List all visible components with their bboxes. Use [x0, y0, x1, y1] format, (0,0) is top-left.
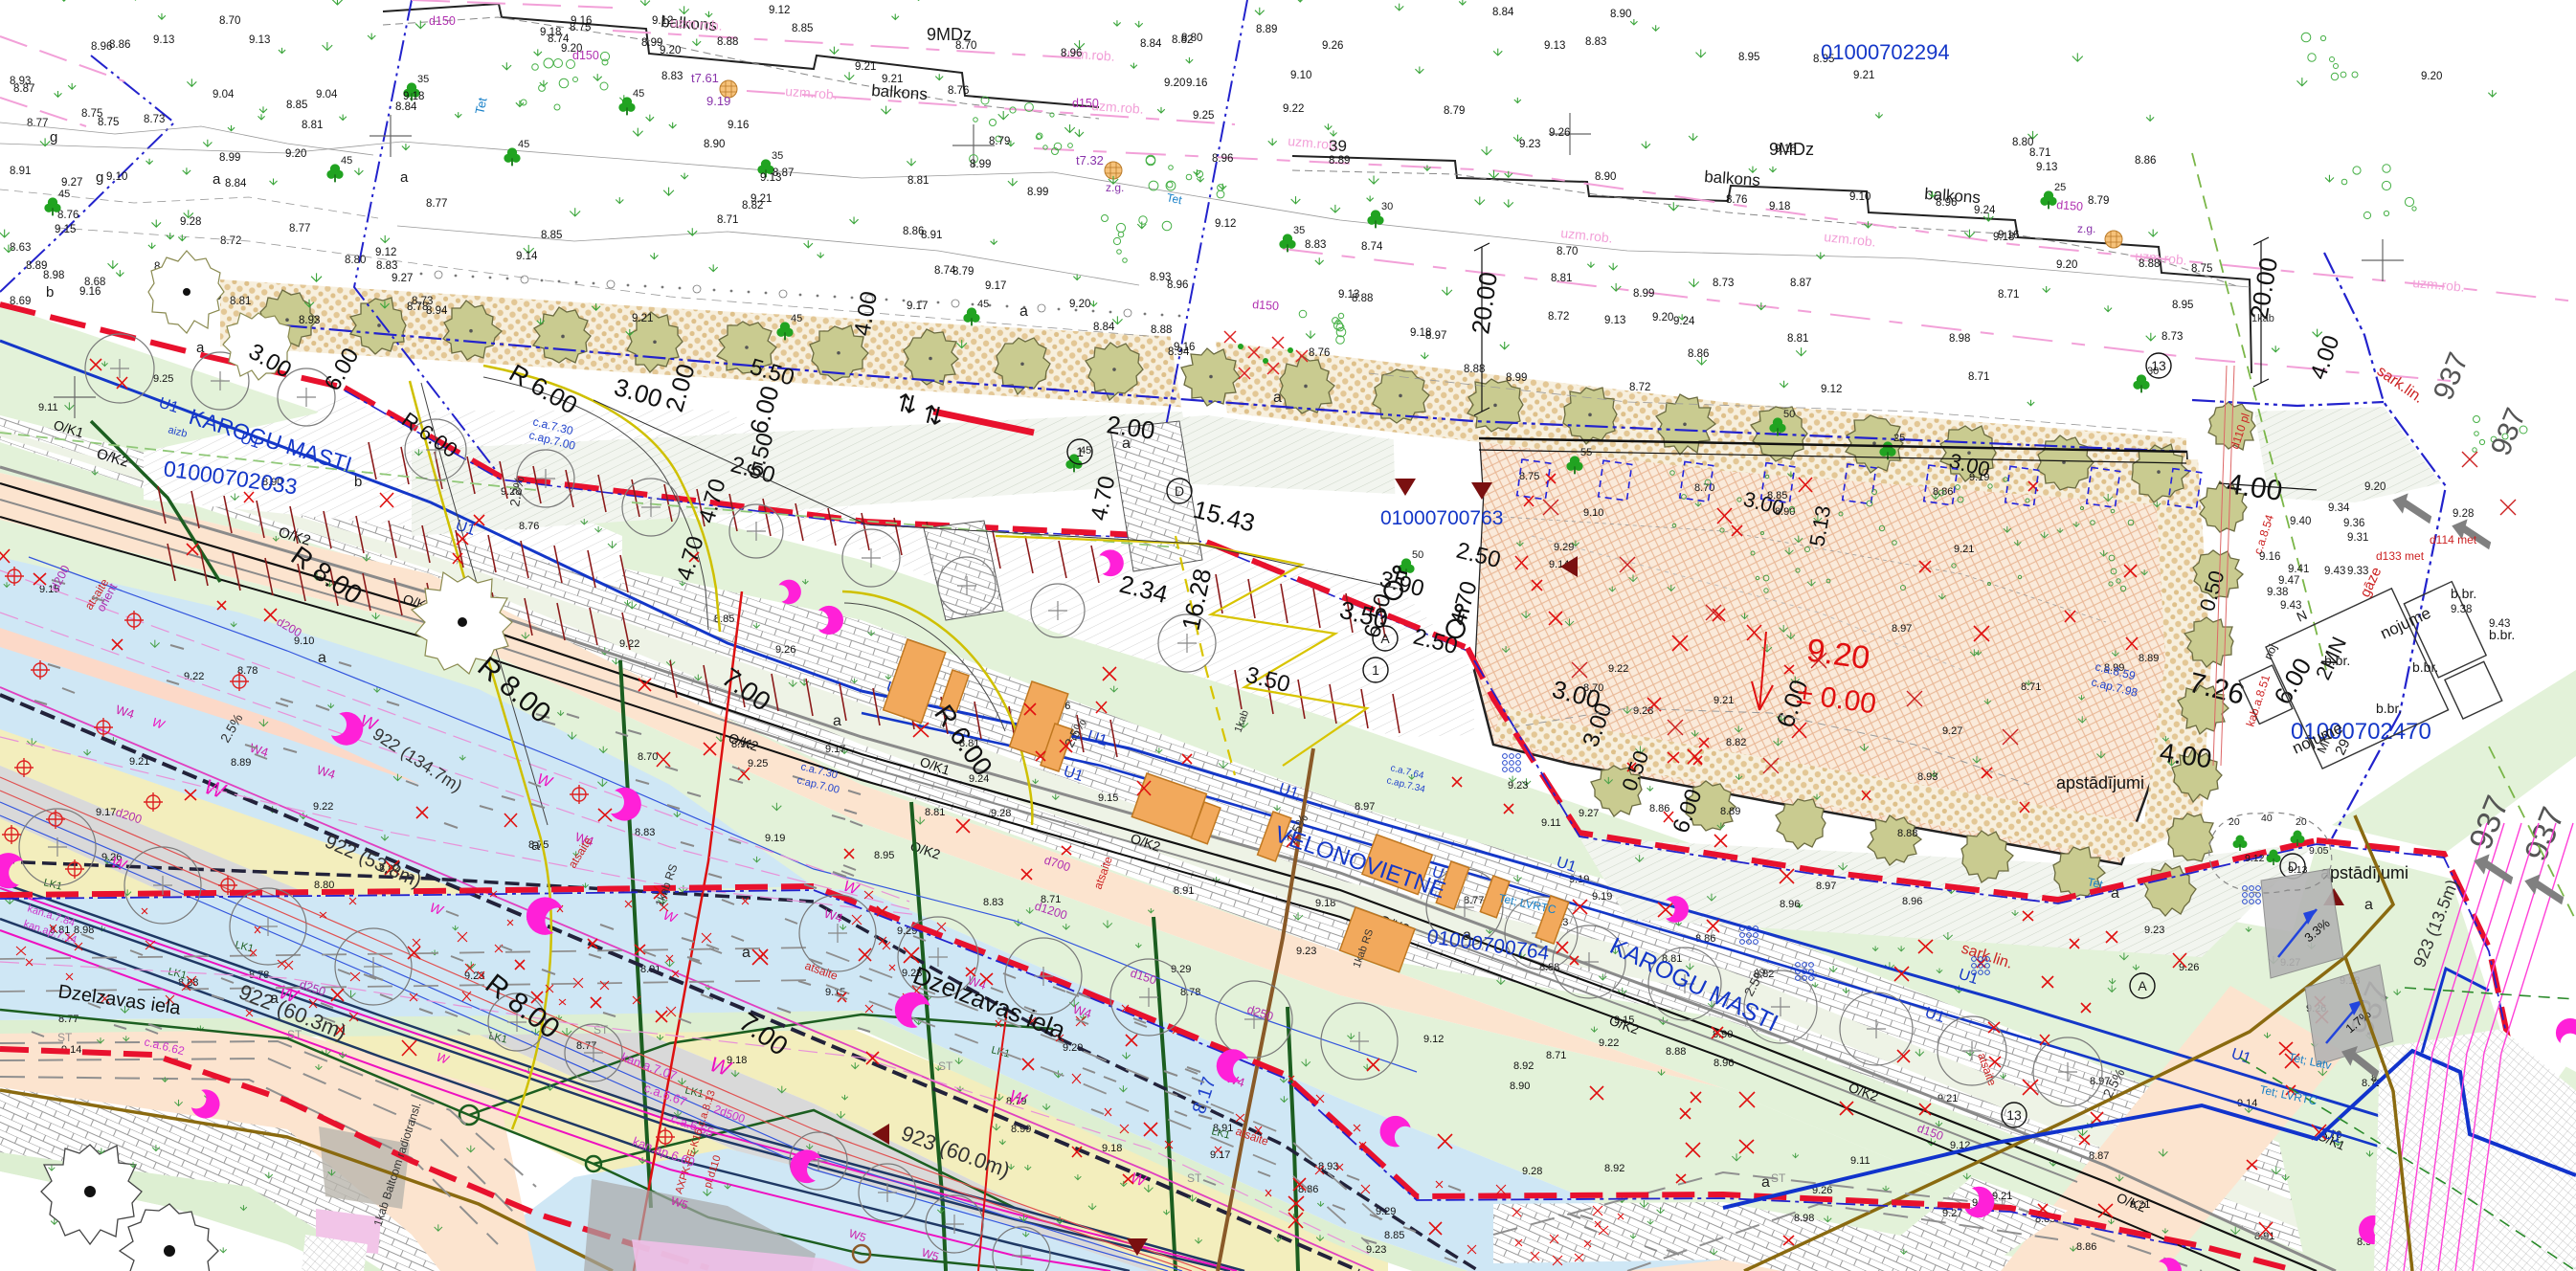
svg-text:9.15: 9.15 — [1098, 792, 1118, 804]
svg-text:45: 45 — [977, 299, 989, 310]
svg-text:8.86: 8.86 — [1933, 486, 1953, 498]
svg-text:8.80: 8.80 — [2012, 137, 2033, 148]
svg-text:a: a — [1761, 1174, 1770, 1191]
svg-text:9.16: 9.16 — [79, 286, 101, 298]
svg-text:8.83: 8.83 — [376, 260, 397, 272]
svg-text:8.71: 8.71 — [717, 214, 738, 226]
svg-text:9.16: 9.16 — [2259, 551, 2280, 563]
svg-text:9.17: 9.17 — [96, 807, 116, 818]
svg-text:9.40: 9.40 — [2290, 516, 2311, 527]
svg-text:9.16: 9.16 — [728, 120, 749, 131]
svg-text:8.83: 8.83 — [635, 827, 655, 838]
svg-text:9.10: 9.10 — [106, 171, 127, 183]
svg-text:b: b — [46, 284, 54, 301]
svg-text:45: 45 — [633, 88, 644, 100]
svg-text:8.98: 8.98 — [1794, 1213, 1814, 1224]
svg-text:50: 50 — [1783, 409, 1795, 420]
svg-text:9.28: 9.28 — [1522, 1166, 1542, 1177]
svg-text:8.75: 8.75 — [1519, 471, 1539, 482]
svg-text:45: 45 — [341, 155, 352, 167]
svg-text:35: 35 — [417, 74, 429, 85]
svg-text:8.93: 8.93 — [299, 315, 320, 326]
svg-text:9.13: 9.13 — [1604, 315, 1625, 326]
svg-text:9.11: 9.11 — [38, 402, 58, 413]
svg-text:8.84: 8.84 — [395, 101, 417, 113]
svg-text:9.13: 9.13 — [1544, 40, 1565, 52]
svg-text:b.br.: b.br. — [2324, 653, 2350, 668]
svg-text:8.75: 8.75 — [2191, 263, 2212, 275]
svg-text:8.77: 8.77 — [27, 118, 48, 129]
svg-text:8.87: 8.87 — [13, 83, 34, 95]
svg-text:9.17: 9.17 — [907, 301, 928, 312]
svg-text:9.18: 9.18 — [1769, 201, 1790, 212]
svg-text:9.20: 9.20 — [285, 148, 306, 160]
svg-text:8.86: 8.86 — [2135, 155, 2156, 167]
svg-text:9.27: 9.27 — [61, 177, 82, 189]
svg-text:9.18: 9.18 — [403, 91, 424, 102]
svg-text:9.20: 9.20 — [1164, 78, 1185, 89]
svg-text:9.21: 9.21 — [632, 313, 653, 324]
svg-text:9.41: 9.41 — [2288, 564, 2309, 575]
svg-text:A: A — [1380, 631, 1390, 646]
svg-text:8.71: 8.71 — [2021, 681, 2041, 693]
svg-text:9.10: 9.10 — [1849, 191, 1870, 203]
svg-text:8.90: 8.90 — [1510, 1081, 1530, 1092]
svg-text:9.18: 9.18 — [1993, 232, 2014, 243]
svg-text:9.38: 9.38 — [2267, 587, 2288, 598]
svg-text:9.19: 9.19 — [765, 833, 785, 844]
svg-text:8.97: 8.97 — [1425, 330, 1446, 342]
svg-text:apstādījumi: apstādījumi — [2320, 863, 2408, 882]
svg-text:8.99: 8.99 — [970, 159, 991, 170]
svg-text:a: a — [1273, 390, 1282, 406]
svg-text:45: 45 — [518, 139, 529, 150]
svg-text:9.20: 9.20 — [1069, 299, 1090, 310]
svg-text:9.15: 9.15 — [55, 224, 76, 235]
svg-text:a: a — [318, 650, 326, 666]
svg-text:a: a — [531, 837, 540, 854]
svg-text:d150: d150 — [1252, 298, 1280, 313]
svg-text:8.91: 8.91 — [1174, 885, 1194, 897]
svg-text:8.77: 8.77 — [426, 198, 447, 210]
svg-text:8.81: 8.81 — [925, 807, 945, 818]
svg-text:8.83: 8.83 — [983, 897, 1003, 908]
svg-text:8.85: 8.85 — [541, 230, 562, 241]
svg-text:55: 55 — [1580, 447, 1592, 458]
svg-text:8.92: 8.92 — [1604, 1163, 1624, 1174]
svg-text:35: 35 — [1293, 225, 1305, 236]
svg-text:9.27: 9.27 — [392, 273, 413, 284]
svg-text:9.20: 9.20 — [1652, 312, 1673, 323]
svg-text:8.76: 8.76 — [57, 210, 78, 221]
svg-text:45: 45 — [58, 189, 70, 200]
svg-text:apstādījumi: apstādījumi — [2056, 773, 2144, 792]
svg-text:8.94: 8.94 — [1168, 346, 1190, 358]
svg-text:8.88: 8.88 — [1897, 828, 1917, 839]
svg-text:8.71: 8.71 — [2029, 147, 2050, 159]
svg-text:t7.61: t7.61 — [691, 71, 719, 85]
svg-text:8.84: 8.84 — [1492, 7, 1514, 18]
svg-text:8.98: 8.98 — [1949, 333, 1970, 345]
svg-text:8.91: 8.91 — [10, 166, 31, 177]
svg-text:9.13: 9.13 — [1338, 289, 1359, 301]
svg-text:t7.32: t7.32 — [1076, 153, 1104, 167]
svg-text:9.47: 9.47 — [2278, 575, 2299, 587]
svg-text:9.22: 9.22 — [1599, 1037, 1619, 1049]
svg-text:50: 50 — [1412, 549, 1423, 561]
svg-text:9.38: 9.38 — [2451, 604, 2472, 615]
svg-text:ST: ST — [287, 1028, 302, 1041]
svg-text:9.22: 9.22 — [184, 671, 204, 682]
svg-text:1kab: 1kab — [2251, 313, 2274, 324]
svg-text:9.13: 9.13 — [2288, 864, 2308, 876]
svg-text:8.74: 8.74 — [548, 33, 570, 45]
svg-text:8.95: 8.95 — [1738, 52, 1759, 63]
svg-text:9.29: 9.29 — [1171, 964, 1191, 975]
svg-text:8.86: 8.86 — [1649, 803, 1669, 814]
svg-text:8.96: 8.96 — [1212, 153, 1233, 165]
svg-text:8.72: 8.72 — [220, 235, 241, 247]
svg-text:a: a — [213, 171, 221, 188]
svg-text:8.88: 8.88 — [1666, 1046, 1686, 1058]
svg-text:8.93: 8.93 — [1917, 771, 1938, 783]
svg-text:8.78: 8.78 — [407, 301, 428, 313]
svg-text:8.76: 8.76 — [1309, 347, 1330, 359]
svg-text:9.22: 9.22 — [1608, 663, 1628, 675]
svg-text:8.81: 8.81 — [1551, 273, 1572, 284]
svg-text:8.98: 8.98 — [43, 270, 64, 281]
svg-text:g: g — [96, 169, 103, 186]
svg-text:9.29: 9.29 — [1554, 542, 1574, 553]
svg-text:9.12: 9.12 — [1215, 218, 1236, 230]
svg-text:8.89: 8.89 — [231, 757, 251, 769]
svg-text:9.23: 9.23 — [1366, 1244, 1386, 1256]
svg-text:a: a — [1019, 303, 1028, 320]
svg-text:8.71: 8.71 — [1998, 289, 2019, 301]
svg-text:9.11: 9.11 — [1850, 1155, 1870, 1167]
svg-text:8.88: 8.88 — [2139, 258, 2160, 270]
svg-text:8.99: 8.99 — [219, 152, 240, 164]
svg-text:9.14: 9.14 — [516, 251, 538, 262]
svg-text:9.12: 9.12 — [652, 15, 673, 27]
svg-text:9.04: 9.04 — [316, 89, 338, 100]
svg-text:8.72: 8.72 — [1548, 311, 1569, 323]
svg-text:8.89: 8.89 — [1256, 24, 1277, 35]
svg-text:9.27: 9.27 — [1942, 725, 1962, 737]
svg-text:8.86: 8.86 — [1688, 348, 1709, 360]
svg-text:9.16: 9.16 — [1775, 144, 1796, 155]
svg-text:8.71: 8.71 — [1546, 1050, 1566, 1061]
svg-text:9.20: 9.20 — [660, 45, 681, 56]
svg-text:9.10: 9.10 — [1290, 70, 1311, 81]
svg-text:9.34: 9.34 — [2328, 502, 2350, 514]
svg-text:D: D — [1175, 483, 1184, 499]
svg-text:b.br.: b.br. — [2412, 659, 2438, 675]
svg-text:8.75: 8.75 — [570, 22, 591, 33]
svg-text:8.70: 8.70 — [1557, 246, 1578, 257]
svg-text:9.12: 9.12 — [1821, 384, 1842, 395]
svg-text:8.84: 8.84 — [1093, 322, 1115, 333]
svg-text:8.73: 8.73 — [2162, 331, 2183, 343]
svg-text:8.77: 8.77 — [1464, 895, 1484, 906]
svg-text:d150: d150 — [429, 14, 456, 28]
svg-text:z.g.: z.g. — [2077, 222, 2095, 235]
svg-text:d114 met: d114 met — [2430, 533, 2477, 546]
svg-text:1: 1 — [1076, 444, 1084, 459]
svg-text:8.99: 8.99 — [1506, 372, 1527, 384]
svg-text:b.br.: b.br. — [2451, 586, 2476, 601]
svg-text:45: 45 — [791, 313, 802, 324]
svg-text:a: a — [742, 945, 750, 961]
svg-text:8.90: 8.90 — [1595, 171, 1616, 183]
svg-text:9.19: 9.19 — [1592, 891, 1612, 903]
svg-text:9.12: 9.12 — [375, 247, 396, 258]
svg-text:8.70: 8.70 — [219, 15, 240, 27]
svg-text:A: A — [2138, 978, 2147, 993]
svg-text:8.92: 8.92 — [1513, 1060, 1534, 1072]
svg-text:8.73: 8.73 — [144, 114, 165, 125]
svg-text:9.33: 9.33 — [2347, 566, 2368, 577]
svg-text:9.10: 9.10 — [1583, 507, 1603, 519]
svg-text:8.93: 8.93 — [1318, 1161, 1338, 1172]
svg-text:8.96: 8.96 — [1936, 197, 1957, 209]
svg-text:8.76: 8.76 — [948, 85, 969, 97]
svg-text:8.76: 8.76 — [1726, 194, 1747, 206]
svg-text:8.89: 8.89 — [2139, 653, 2159, 664]
svg-text:ST: ST — [938, 1059, 953, 1073]
svg-text:8.95: 8.95 — [874, 850, 894, 861]
svg-text:8.99: 8.99 — [1027, 187, 1048, 198]
svg-text:9.12: 9.12 — [769, 5, 790, 16]
svg-text:8.74: 8.74 — [1361, 241, 1383, 253]
svg-text:8.85: 8.85 — [286, 100, 307, 111]
svg-text:8.85: 8.85 — [1384, 1230, 1404, 1241]
svg-text:9.26: 9.26 — [775, 644, 795, 656]
svg-text:9.12: 9.12 — [1423, 1034, 1444, 1045]
svg-text:8.81: 8.81 — [230, 296, 251, 307]
svg-text:8.82: 8.82 — [742, 200, 763, 212]
svg-text:8.96: 8.96 — [1902, 896, 1922, 907]
svg-text:8.96: 8.96 — [1061, 48, 1082, 59]
svg-text:30: 30 — [1381, 201, 1393, 212]
svg-text:9.25: 9.25 — [748, 758, 768, 769]
svg-text:a: a — [400, 169, 409, 186]
svg-text:35: 35 — [772, 150, 783, 162]
svg-text:9.22: 9.22 — [313, 801, 333, 813]
svg-text:8.97: 8.97 — [1892, 623, 1912, 635]
svg-text:ST: ST — [1771, 1171, 1786, 1185]
svg-text:9.23: 9.23 — [1508, 780, 1528, 792]
svg-text:9.13: 9.13 — [249, 34, 270, 46]
svg-text:13: 13 — [2151, 358, 2166, 373]
svg-text:8.97: 8.97 — [1355, 801, 1375, 813]
svg-text:8.84: 8.84 — [1140, 38, 1162, 50]
svg-text:40: 40 — [2261, 813, 2273, 824]
svg-text:ST: ST — [1187, 1171, 1202, 1185]
svg-text:a: a — [2364, 897, 2373, 913]
svg-text:9.20: 9.20 — [2364, 481, 2386, 493]
svg-text:8.79: 8.79 — [989, 136, 1010, 147]
svg-text:9.21: 9.21 — [1954, 544, 1974, 555]
svg-text:9.20: 9.20 — [2421, 71, 2442, 82]
svg-text:8.77: 8.77 — [289, 223, 310, 234]
svg-text:8.86: 8.86 — [109, 39, 130, 51]
svg-text:9.05: 9.05 — [2309, 845, 2329, 857]
svg-text:9.04: 9.04 — [213, 89, 235, 100]
svg-text:8.88: 8.88 — [1151, 324, 1172, 336]
svg-text:8.72: 8.72 — [1629, 382, 1650, 393]
svg-text:9.21: 9.21 — [1714, 695, 1734, 706]
svg-text:d150: d150 — [572, 49, 599, 62]
svg-text:9.25: 9.25 — [1193, 110, 1214, 122]
svg-text:d133 met: d133 met — [2376, 549, 2425, 563]
svg-text:8.84: 8.84 — [225, 178, 247, 190]
svg-text:8.90: 8.90 — [704, 139, 725, 150]
svg-text:9.28: 9.28 — [180, 216, 201, 228]
svg-text:8.83: 8.83 — [1585, 36, 1606, 48]
svg-text:8.80: 8.80 — [1181, 33, 1202, 44]
svg-text:8.94: 8.94 — [426, 305, 448, 317]
svg-text:8.88: 8.88 — [717, 36, 738, 48]
svg-text:9.16: 9.16 — [1186, 78, 1207, 89]
svg-text:8.70: 8.70 — [638, 751, 658, 763]
svg-text:9.21: 9.21 — [882, 74, 903, 85]
svg-text:1: 1 — [1372, 662, 1379, 678]
svg-text:20: 20 — [2229, 816, 2240, 828]
svg-text:9.24: 9.24 — [1673, 316, 1695, 327]
svg-text:a: a — [833, 713, 841, 729]
svg-text:8.96: 8.96 — [1714, 1058, 1734, 1069]
svg-text:a: a — [2111, 885, 2119, 902]
svg-text:9.28: 9.28 — [2453, 508, 2474, 520]
svg-text:8.76: 8.76 — [519, 521, 539, 532]
svg-text:ST: ST — [57, 1031, 73, 1044]
svg-text:8.82: 8.82 — [1726, 737, 1746, 748]
svg-text:a: a — [1463, 927, 1471, 944]
svg-text:8.95: 8.95 — [2172, 300, 2193, 311]
svg-text:9.19: 9.19 — [706, 94, 730, 108]
svg-text:9.13: 9.13 — [760, 172, 781, 184]
svg-text:9.36: 9.36 — [2343, 518, 2364, 529]
svg-text:01000700763: 01000700763 — [1380, 507, 1503, 529]
svg-text:9.23: 9.23 — [1519, 139, 1540, 150]
svg-text:8.79: 8.79 — [1444, 105, 1465, 117]
svg-text:8.79: 8.79 — [2088, 195, 2109, 207]
svg-text:9.25: 9.25 — [153, 373, 173, 385]
svg-text:9.21: 9.21 — [855, 61, 876, 73]
svg-text:9.26: 9.26 — [1322, 40, 1343, 52]
svg-text:9.17: 9.17 — [1210, 1149, 1230, 1161]
svg-text:8.85: 8.85 — [714, 613, 734, 625]
svg-text:8.70: 8.70 — [955, 40, 976, 52]
svg-text:8.71: 8.71 — [1968, 371, 1989, 383]
svg-text:8.96: 8.96 — [1780, 899, 1800, 910]
svg-text:8.89: 8.89 — [1329, 155, 1350, 167]
svg-text:9.21: 9.21 — [1853, 70, 1874, 81]
svg-text:9.22: 9.22 — [1283, 103, 1304, 115]
svg-text:9.12: 9.12 — [2245, 853, 2265, 864]
svg-text:b.br.: b.br. — [2376, 701, 2402, 716]
svg-text:01000702294: 01000702294 — [1821, 40, 1950, 64]
svg-text:8.79: 8.79 — [952, 266, 974, 278]
svg-text:9.23: 9.23 — [2144, 925, 2164, 936]
svg-text:8.81: 8.81 — [907, 175, 929, 187]
svg-text:9.11: 9.11 — [1541, 817, 1561, 829]
svg-text:8.91: 8.91 — [921, 230, 942, 241]
svg-text:9.43: 9.43 — [2324, 566, 2345, 577]
svg-text:39: 39 — [1329, 137, 1347, 155]
svg-text:9.23: 9.23 — [1296, 946, 1316, 957]
svg-text:g: g — [50, 129, 57, 145]
svg-text:8.97: 8.97 — [1816, 881, 1836, 892]
svg-text:9.17: 9.17 — [985, 280, 1006, 292]
svg-text:8.81: 8.81 — [1787, 333, 1808, 345]
svg-text:8.87: 8.87 — [1790, 278, 1811, 289]
svg-text:8.70: 8.70 — [1694, 482, 1714, 494]
svg-text:8.73: 8.73 — [1713, 278, 1734, 289]
svg-text:13: 13 — [2006, 1107, 2022, 1123]
svg-text:9.31: 9.31 — [2347, 532, 2368, 544]
svg-text:8.86: 8.86 — [2076, 1241, 2096, 1253]
svg-text:8.83: 8.83 — [1305, 239, 1326, 251]
svg-text:9.13: 9.13 — [153, 34, 174, 46]
svg-text:8.99: 8.99 — [1633, 288, 1654, 300]
svg-text:b.br.: b.br. — [2489, 627, 2515, 642]
svg-text:9.24: 9.24 — [1974, 205, 1996, 216]
svg-text:8.75: 8.75 — [98, 117, 119, 128]
svg-text:8.81: 8.81 — [302, 120, 323, 131]
svg-text:8.90: 8.90 — [1610, 9, 1631, 20]
svg-text:8.83: 8.83 — [661, 71, 683, 82]
svg-text:9.20: 9.20 — [2056, 259, 2077, 271]
svg-text:25: 25 — [2054, 182, 2066, 193]
svg-text:9.27: 9.27 — [1579, 808, 1599, 819]
svg-text:20: 20 — [2296, 816, 2307, 828]
svg-text:8.89: 8.89 — [1720, 806, 1740, 817]
svg-text:d150: d150 — [1072, 97, 1099, 110]
svg-text:d150: d150 — [2056, 198, 2084, 213]
svg-text:25: 25 — [1893, 433, 1905, 444]
svg-text:a: a — [270, 991, 279, 1007]
svg-text:8.85: 8.85 — [792, 23, 813, 34]
svg-text:9.13: 9.13 — [2036, 162, 2057, 173]
svg-text:8.93: 8.93 — [1150, 272, 1171, 283]
svg-text:9.26: 9.26 — [1549, 127, 1570, 139]
svg-text:a: a — [1122, 435, 1131, 452]
